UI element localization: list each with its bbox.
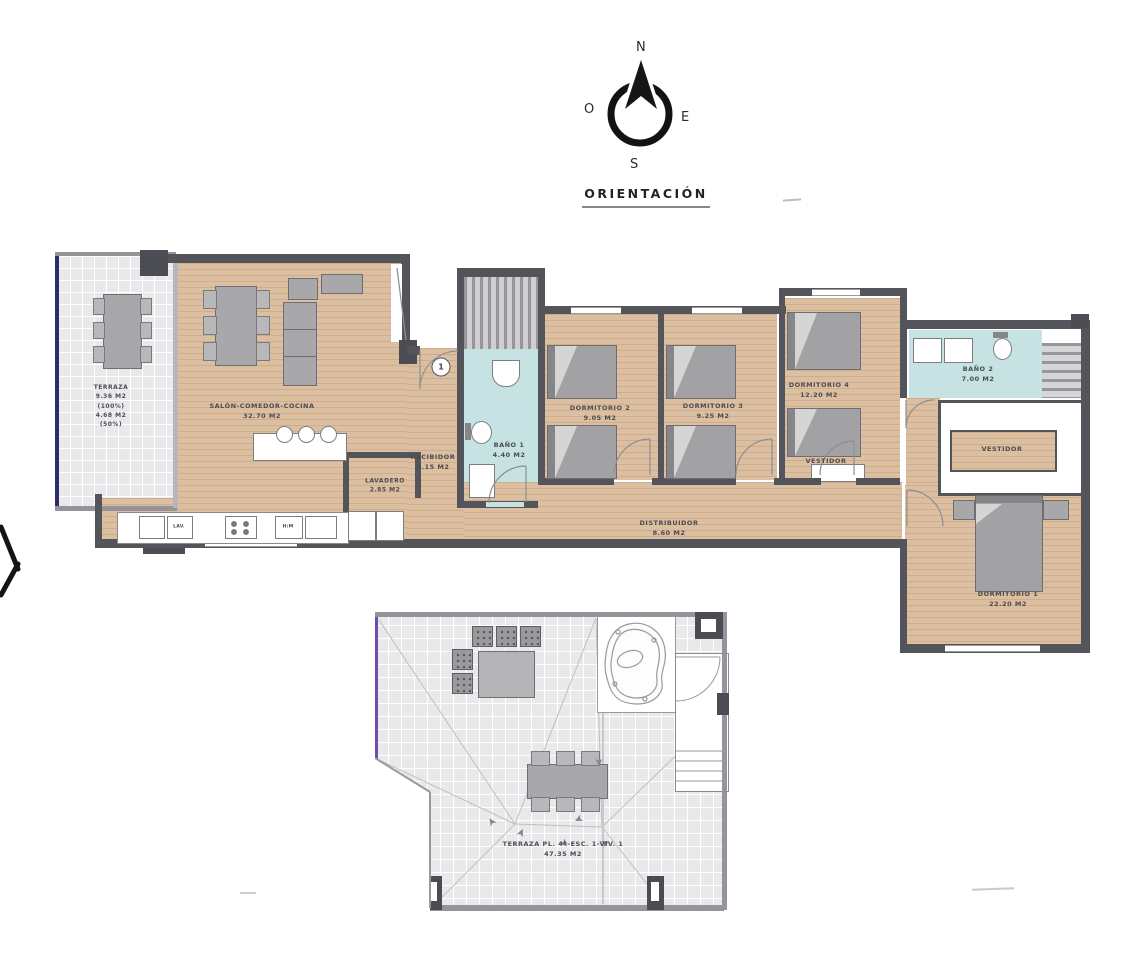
room-label-distribuidor: DISTRIBUIDOR 8.60 M2 [640,518,699,538]
wall-pillar [140,250,168,276]
room-label-vestidor-dorm1: VESTIDOR [982,444,1023,454]
dormitorio3-name: DORMITORIO 3 [683,401,744,411]
chair [531,797,550,812]
room-label-bano1: BAÑO 1 4.40 M2 [493,440,526,460]
kitchen-sink [139,516,165,539]
dormitorio1-name: DORMITORIO 1 [978,589,1039,599]
chair [531,751,550,766]
bed [666,425,736,479]
ottoman [452,649,473,670]
salon-dining-table [215,286,257,366]
pillar-core [651,882,659,901]
sofa-module [283,302,317,330]
compass-graphic [575,38,720,183]
wall-pillar [717,693,729,715]
salon-area: 32.70 M2 [209,411,314,421]
terrace-plan-name: TERRAZA PL. 4ª-ESC. 1-VIV. 1 [503,839,624,849]
ottoman [472,626,493,647]
washer [348,511,376,541]
chair [93,346,105,363]
sofa-module [288,278,318,300]
terraza-area-half: 4.68 M2 [94,411,129,420]
chair [203,342,217,361]
terrace-edge-line [375,614,378,760]
terraza-area: 9.36 M2 [94,392,129,401]
chair [140,298,152,315]
dormitorio2-area: 9.05 M2 [570,413,631,423]
oven-microwave-label: H:M [283,523,294,530]
room-label-vestidor-dorm4: VESTIDOR [806,456,847,466]
bano1-shower [464,275,538,349]
dormitorio1-window [945,645,1040,652]
balcony-door-opening [391,264,402,342]
wall [722,612,727,910]
wall [457,268,541,277]
wall [55,506,177,511]
terraza-edge-wall [55,254,59,506]
room-label-terrace-plan: TERRAZA PL. 4ª-ESC. 1-VIV. 1 47.35 M2 [503,839,624,859]
cooktop [225,516,257,539]
wall [856,478,900,485]
compass-rose: N O E S [575,38,720,183]
wall [779,290,785,484]
window [571,307,621,314]
wall [375,612,725,617]
chimney-flue [701,619,716,632]
distribuidor-area: 8.60 M2 [640,528,699,538]
bed [666,345,736,399]
bano2-area: 7.00 M2 [962,374,995,384]
chair [93,298,105,315]
jacuzzi-enclosure [597,615,676,713]
orientation-title-text: ORIENTACIÓN [582,186,710,208]
room-label-dormitorio3: DORMITORIO 3 9.25 M2 [683,401,744,421]
wall-pillar [1071,314,1089,328]
lavadero-name: LAVADERO [365,477,405,486]
wall [658,306,664,484]
window [692,307,742,314]
wall [900,288,907,398]
compass-north-label: N [636,40,646,55]
wall [343,452,421,458]
chair [203,316,217,335]
room-label-salon: SALÓN-COMEDOR-COCINA 32.70 M2 [209,401,314,421]
dishwasher-label: LAV. [173,523,185,530]
label-dishwasher: LAV. [173,523,185,530]
compass-east-label: E [681,110,689,125]
vestidor-dorm1-name: VESTIDOR [982,444,1023,454]
window [812,289,860,296]
bano1-door-opening [486,502,524,507]
entry-marker-number: 1 [438,363,444,372]
dormitorio2-name: DORMITORIO 2 [570,403,631,413]
salon-name: SALÓN-COMEDOR-COCINA [209,401,314,411]
shower-tray [492,360,520,387]
chair [556,751,575,766]
wall [95,494,102,548]
island-stool [320,426,337,443]
chair [256,316,270,335]
wall [168,254,409,263]
floorplan-page: { "compass": { "north": "N", "east": "E"… [0,0,1132,965]
dormitorio4-name: DORMITORIO 4 [789,380,850,390]
chair [581,797,600,812]
orientation-title: ORIENTACIÓN [570,183,722,208]
terraza-window [173,256,178,508]
dormitorio3-area: 9.25 M2 [683,411,744,421]
chair [581,751,600,766]
kitchen-cabinet [305,516,337,539]
washbasin [469,464,495,498]
bano2-shower [1042,343,1082,398]
wall [900,539,907,651]
lobby-floor [906,398,940,488]
nightstand [1043,500,1069,520]
wall [457,268,464,508]
chair [256,342,270,361]
dryer [376,511,404,541]
stair-enclosure [675,653,729,792]
handwritten-x-mark [0,522,26,602]
apartment-floorplan: TERRAZA 9.36 M2 (100%) 4.68 M2 (50%) SAL… [55,250,1095,655]
terraza-name: TERRAZA [94,383,129,392]
bed [787,312,861,370]
room-label-dormitorio2: DORMITORIO 2 9.05 M2 [570,403,631,423]
room-label-recibidor: RECIBIDOR 5.15 M2 [411,452,455,472]
terrace-plan-area: 47.35 M2 [503,849,624,859]
entry-marker: 1 [432,358,451,377]
wall [774,478,821,485]
terraza-pct-full: (100%) [94,401,129,410]
toilet [471,421,492,444]
room-label-dormitorio1: DORMITORIO 1 22.20 M2 [978,589,1039,609]
island-stool [298,426,315,443]
wall [1081,320,1090,652]
dormitorio1-area: 22.20 M2 [978,599,1039,609]
vestidor-dorm4-name: VESTIDOR [806,456,847,466]
toilet [993,338,1012,360]
wall [401,254,410,348]
bed [787,408,861,457]
sofa-module [283,356,317,386]
lavadero-area: 2.85 M2 [365,486,405,495]
bed-double [975,495,1043,592]
ottoman [520,626,541,647]
stray-mark [240,892,256,894]
room-label-dormitorio4: DORMITORIO 4 12.20 M2 [789,380,850,400]
chair [140,346,152,363]
terrace-dining-table [527,764,608,799]
room-label-lavadero: LAVADERO 2.85 M2 [365,477,405,496]
wall [538,268,545,484]
washbasin [944,338,973,363]
label-oven-microwave: H:M [283,523,294,530]
wall [652,478,736,485]
wall [407,346,420,355]
bano1-name: BAÑO 1 [493,440,526,450]
wall [900,320,1089,329]
chair [556,797,575,812]
ottoman [452,673,473,694]
stray-mark [972,887,1014,890]
room-label-terraza: TERRAZA 9.36 M2 (100%) 4.68 M2 (50%) [94,383,129,429]
sofa-module [283,329,317,357]
roof-terrace-plan: TERRAZA PL. 4ª-ESC. 1-VIV. 1 47.35 M2 [375,612,743,912]
bed [547,425,617,479]
bed [547,345,617,399]
nightstand [953,500,975,520]
chair [203,290,217,309]
recibidor-name: RECIBIDOR [411,452,455,462]
chair [256,290,270,309]
bano2-name: BAÑO 2 [962,364,995,374]
chair [140,322,152,339]
pillar-core [429,882,437,901]
bano1-area: 4.40 M2 [493,450,526,460]
compass-west-label: O [584,102,594,117]
sideboard [321,274,363,294]
recibidor-floor [407,348,464,544]
ottoman [496,626,517,647]
stray-mark [783,198,801,201]
room-label-bano2: BAÑO 2 7.00 M2 [962,364,995,384]
compass-south-label: S [630,157,638,172]
wall [430,905,724,911]
lounge-table [478,651,535,698]
terraza-pct-half: (50%) [94,420,129,429]
terraza-dining-table [103,294,142,369]
island-stool [276,426,293,443]
dormitorio4-area: 12.20 M2 [789,390,850,400]
distribuidor-name: DISTRIBUIDOR [640,518,699,528]
recibidor-area: 5.15 M2 [411,462,455,472]
washbasin [913,338,942,363]
chair [93,322,105,339]
wall [538,478,614,485]
